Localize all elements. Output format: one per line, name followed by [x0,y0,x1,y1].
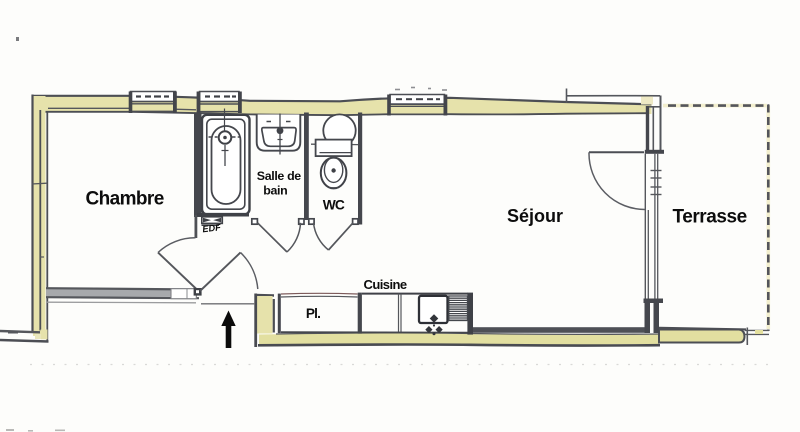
svg-text:bain: bain [263,184,287,198]
svg-text:Pl.: Pl. [306,306,320,321]
svg-text:WC: WC [323,197,345,212]
svg-text:Terrasse: Terrasse [673,207,747,228]
svg-text:Chambre: Chambre [86,188,164,209]
svg-text:Salle de: Salle de [257,169,301,183]
svg-text:Cuisine: Cuisine [364,277,407,292]
svg-text:Séjour: Séjour [507,206,563,226]
